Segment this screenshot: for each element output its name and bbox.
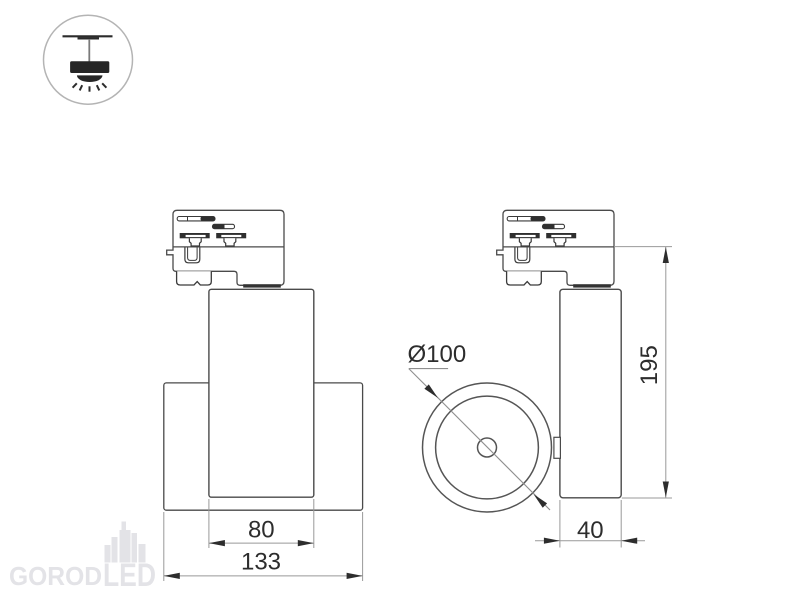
svg-text:Ø100: Ø100 <box>408 341 467 368</box>
svg-text:40: 40 <box>577 517 604 544</box>
svg-text:195: 195 <box>636 345 663 385</box>
svg-text:GOROD: GOROD <box>9 561 102 591</box>
svg-text:80: 80 <box>248 516 275 543</box>
svg-text:133: 133 <box>241 549 281 576</box>
